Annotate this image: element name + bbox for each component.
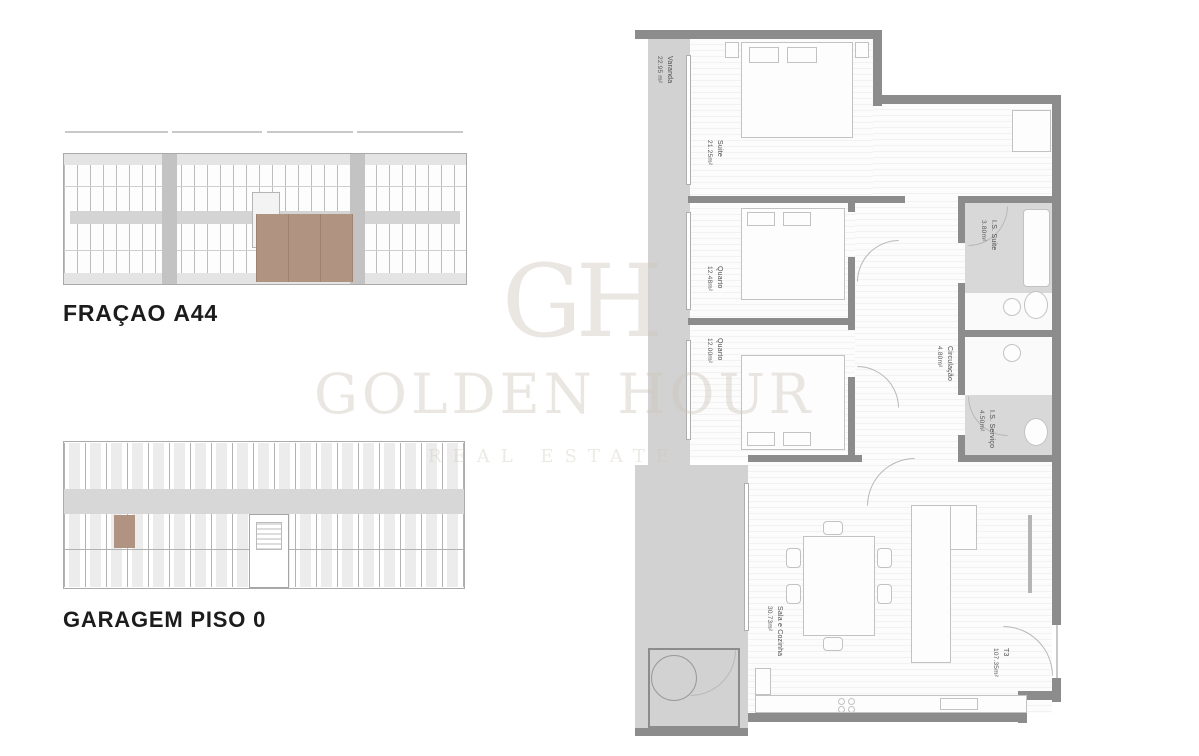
brand-monogram: GH bbox=[502, 252, 657, 352]
highlighted-unit-a44 bbox=[256, 214, 353, 282]
sink-suite bbox=[1003, 298, 1021, 316]
wall-bath-left-b bbox=[958, 283, 965, 395]
label-is-suite: I.S. Suite3.80m² bbox=[979, 220, 998, 250]
balcony-strip-top bbox=[64, 154, 466, 165]
hall-floor bbox=[855, 196, 965, 460]
bathtub bbox=[1023, 209, 1050, 287]
garagem-title-number: PISO 0 bbox=[190, 607, 266, 632]
label-circulacao: Circulação4.80m² bbox=[935, 346, 954, 381]
wall-living-top-a bbox=[748, 455, 862, 462]
wall-top-left bbox=[635, 30, 882, 39]
driving-aisle bbox=[64, 489, 464, 514]
wall-quarto-divider bbox=[688, 318, 850, 325]
window-living bbox=[744, 483, 749, 631]
building-key-plan bbox=[63, 125, 465, 285]
fracao-title-number: A44 bbox=[173, 300, 218, 326]
dining-table bbox=[803, 536, 875, 636]
pillow bbox=[747, 212, 775, 226]
kitchen-cabinet bbox=[755, 668, 771, 695]
wall-right bbox=[1052, 95, 1061, 625]
entrance-door-leaf bbox=[1056, 625, 1058, 680]
balcony-line bbox=[172, 131, 262, 133]
window-quarto2 bbox=[686, 340, 691, 440]
wall-bath-divider bbox=[965, 330, 1052, 337]
pillow bbox=[787, 47, 817, 63]
tv bbox=[1028, 515, 1032, 593]
wall-kitchen-bottom bbox=[748, 713, 1027, 722]
wall-living-top-b bbox=[958, 455, 1052, 462]
garagem-title-prefix: GARAGEM bbox=[63, 607, 190, 632]
sink-servico bbox=[1003, 344, 1021, 362]
chair bbox=[877, 548, 892, 568]
chair bbox=[786, 548, 801, 568]
stove-burner bbox=[838, 698, 845, 705]
stove-burner bbox=[848, 706, 855, 713]
toilet-servico bbox=[1024, 418, 1048, 446]
wall-bath-left-a bbox=[958, 203, 965, 243]
parking-row-top bbox=[64, 443, 464, 490]
wall-bath-top bbox=[958, 196, 1052, 203]
building-slab bbox=[63, 153, 467, 285]
stove-burner bbox=[848, 698, 855, 705]
highlighted-parking-space bbox=[114, 515, 135, 548]
sofa bbox=[911, 505, 951, 663]
pillow bbox=[749, 47, 779, 63]
window-suite bbox=[686, 55, 691, 185]
label-suite: Suite21.25m² bbox=[705, 140, 724, 165]
kitchen-counter bbox=[755, 695, 1027, 713]
stove-burner bbox=[838, 706, 845, 713]
stair-core bbox=[162, 154, 177, 284]
chair bbox=[786, 584, 801, 604]
pillow bbox=[783, 432, 811, 446]
label-quarto2: Quarto12.00m² bbox=[705, 338, 724, 363]
pillow bbox=[747, 432, 775, 446]
garage-plan bbox=[63, 441, 465, 589]
label-sala-cozinha: Sala e Cozinha30.73m² bbox=[765, 606, 784, 656]
wall-hall-left-c bbox=[848, 377, 855, 460]
chair bbox=[877, 584, 892, 604]
fracao-title-prefix: FRAÇAO bbox=[63, 300, 173, 326]
balcony-line bbox=[357, 131, 463, 133]
kitchen-sink bbox=[940, 698, 978, 710]
wall-hall-left-b bbox=[848, 257, 855, 330]
balcony-line bbox=[267, 131, 353, 133]
floorplan-page: GH GOLDEN HOUR REAL ESTATE FRAÇAO A44 GA… bbox=[0, 0, 1199, 756]
pillow bbox=[783, 212, 811, 226]
nightstand bbox=[855, 42, 869, 58]
nightstand bbox=[725, 42, 739, 58]
label-varanda: Varanda22.95 m² bbox=[655, 56, 674, 83]
toilet-suite bbox=[1024, 291, 1048, 319]
wall-hall-left-a bbox=[848, 196, 855, 212]
apartment-floor-plan: Varanda22.95 m² Suite21.25m² Quarto12.48… bbox=[635, 28, 1065, 743]
wall-top-right bbox=[873, 95, 1061, 104]
wardrobe bbox=[1012, 110, 1051, 152]
wall-suite-bottom bbox=[688, 196, 905, 203]
fracao-title: FRAÇAO A44 bbox=[63, 300, 218, 327]
label-quarto1: Quarto12.48m² bbox=[705, 266, 724, 291]
varanda-area bbox=[648, 39, 690, 465]
garagem-title: GARAGEM PISO 0 bbox=[63, 607, 266, 633]
window-quarto1 bbox=[686, 212, 691, 310]
terrace-planter bbox=[651, 655, 697, 701]
label-t3-total: T3107.35m² bbox=[991, 648, 1010, 677]
stairs-icon bbox=[256, 522, 282, 550]
wall-terrace-bottom bbox=[635, 728, 748, 736]
chair bbox=[823, 637, 843, 651]
label-is-servico: I.S. Serviço4.50m² bbox=[977, 410, 996, 448]
chair bbox=[823, 521, 843, 535]
balcony-line bbox=[65, 131, 168, 133]
